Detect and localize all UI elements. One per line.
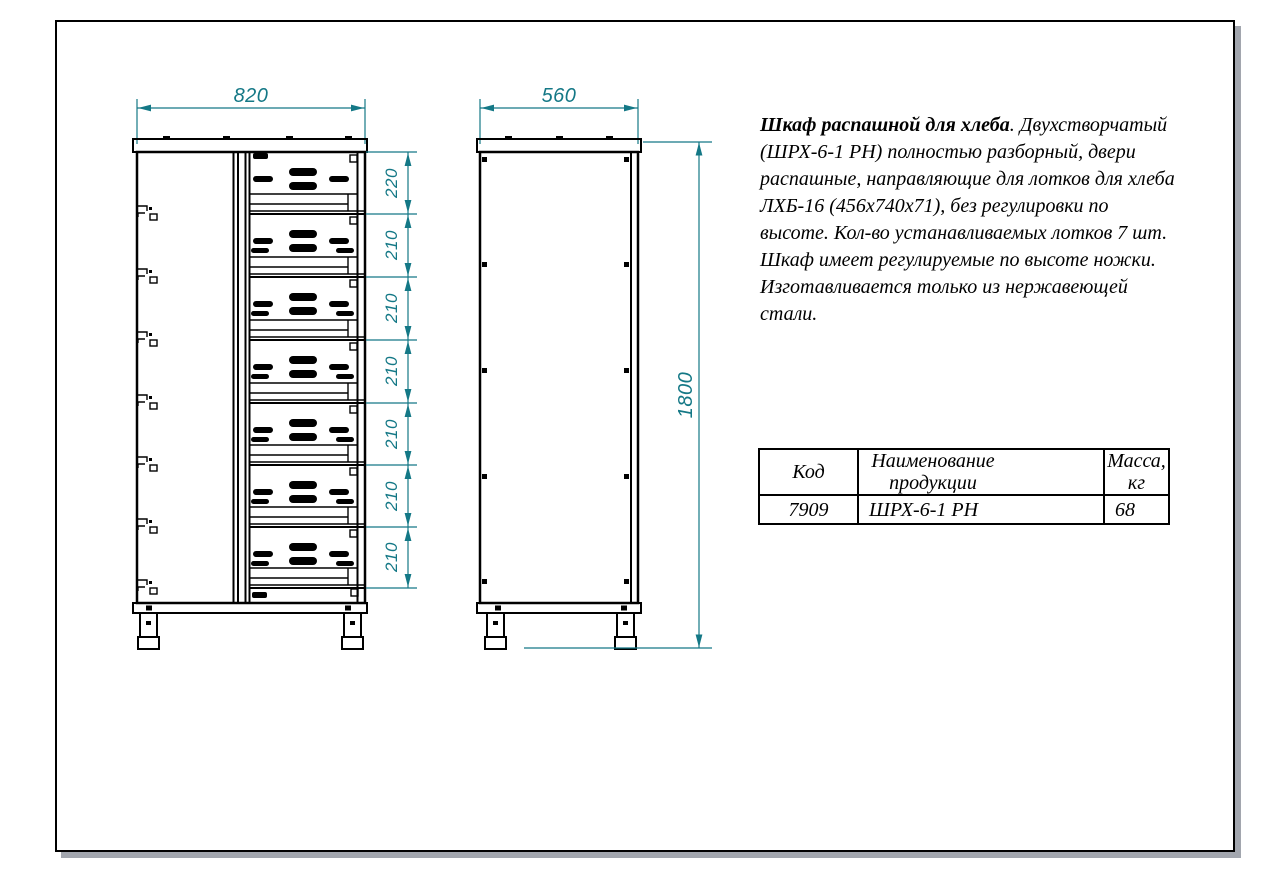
side-depth-dim-label: 560: [542, 85, 577, 107]
shelf-dim-label-1: 220: [382, 168, 401, 199]
shelf-dim-label-3: 210: [382, 293, 401, 324]
description-line: Изготавливается только из нержавеющей: [760, 274, 1200, 301]
table-row: 7909 ШРХ-6-1 РН 68: [759, 495, 1169, 524]
description-line: высоте. Кол-во устанавливаемых лотков 7 …: [760, 220, 1200, 247]
shelf-dimension-chain: 220 210 210 210 210 210 210: [366, 152, 417, 588]
side-height-dim-label: 1800: [675, 372, 697, 419]
description-line: ЛХБ-16 (456х740х71), без регулировки по: [760, 193, 1200, 220]
side-depth-dimension: 560: [480, 85, 638, 144]
product-mass: 68: [1104, 495, 1169, 524]
description-line: распашные, направляющие для лотков для х…: [760, 166, 1200, 193]
description-line: Шкаф имеет регулируемые по высоте ножки.: [760, 247, 1200, 274]
description-text: . Двухстворчатый: [1010, 114, 1167, 136]
product-title: Шкаф распашной для хлеба: [760, 114, 1010, 136]
side-base-and-legs: [477, 603, 641, 649]
front-width-dim-label: 820: [234, 85, 269, 107]
drawing-page: 820: [0, 0, 1263, 879]
shelf-dim-label-2: 210: [382, 230, 401, 261]
table-header-row: Код Наименование продукции Масса, кг: [759, 449, 1169, 495]
side-cabinet-outline: [477, 136, 641, 603]
front-view: 820: [133, 85, 417, 649]
product-table: Код Наименование продукции Масса, кг 790…: [758, 448, 1170, 525]
description-line: (ШРХ-6-1 РН) полностью разборный, двери: [760, 139, 1200, 166]
bread-tray-sections: [249, 155, 365, 588]
side-view: 560: [477, 85, 712, 649]
door-hinges: [138, 206, 157, 594]
front-base-and-legs: [133, 603, 367, 649]
shelf-dim-label-4: 210: [382, 356, 401, 387]
product-name: ШРХ-6-1 РН: [858, 495, 1104, 524]
product-code: 7909: [759, 495, 858, 524]
front-width-dimension: 820: [137, 85, 365, 144]
table-header-mass: Масса, кг: [1104, 449, 1169, 495]
table-header-code: Код: [759, 449, 858, 495]
shelf-dim-label-7: 210: [382, 542, 401, 573]
shelf-dim-label-5: 210: [382, 419, 401, 450]
description-line: стали.: [760, 301, 1200, 328]
product-description: Шкаф распашной для хлеба. Двухстворчатый…: [760, 112, 1200, 328]
description-line: Шкаф распашной для хлеба. Двухстворчатый: [760, 112, 1200, 139]
table-header-name: Наименование продукции: [858, 449, 1104, 495]
shelf-dim-label-6: 210: [382, 481, 401, 512]
side-height-dimension: 1800: [524, 142, 712, 648]
